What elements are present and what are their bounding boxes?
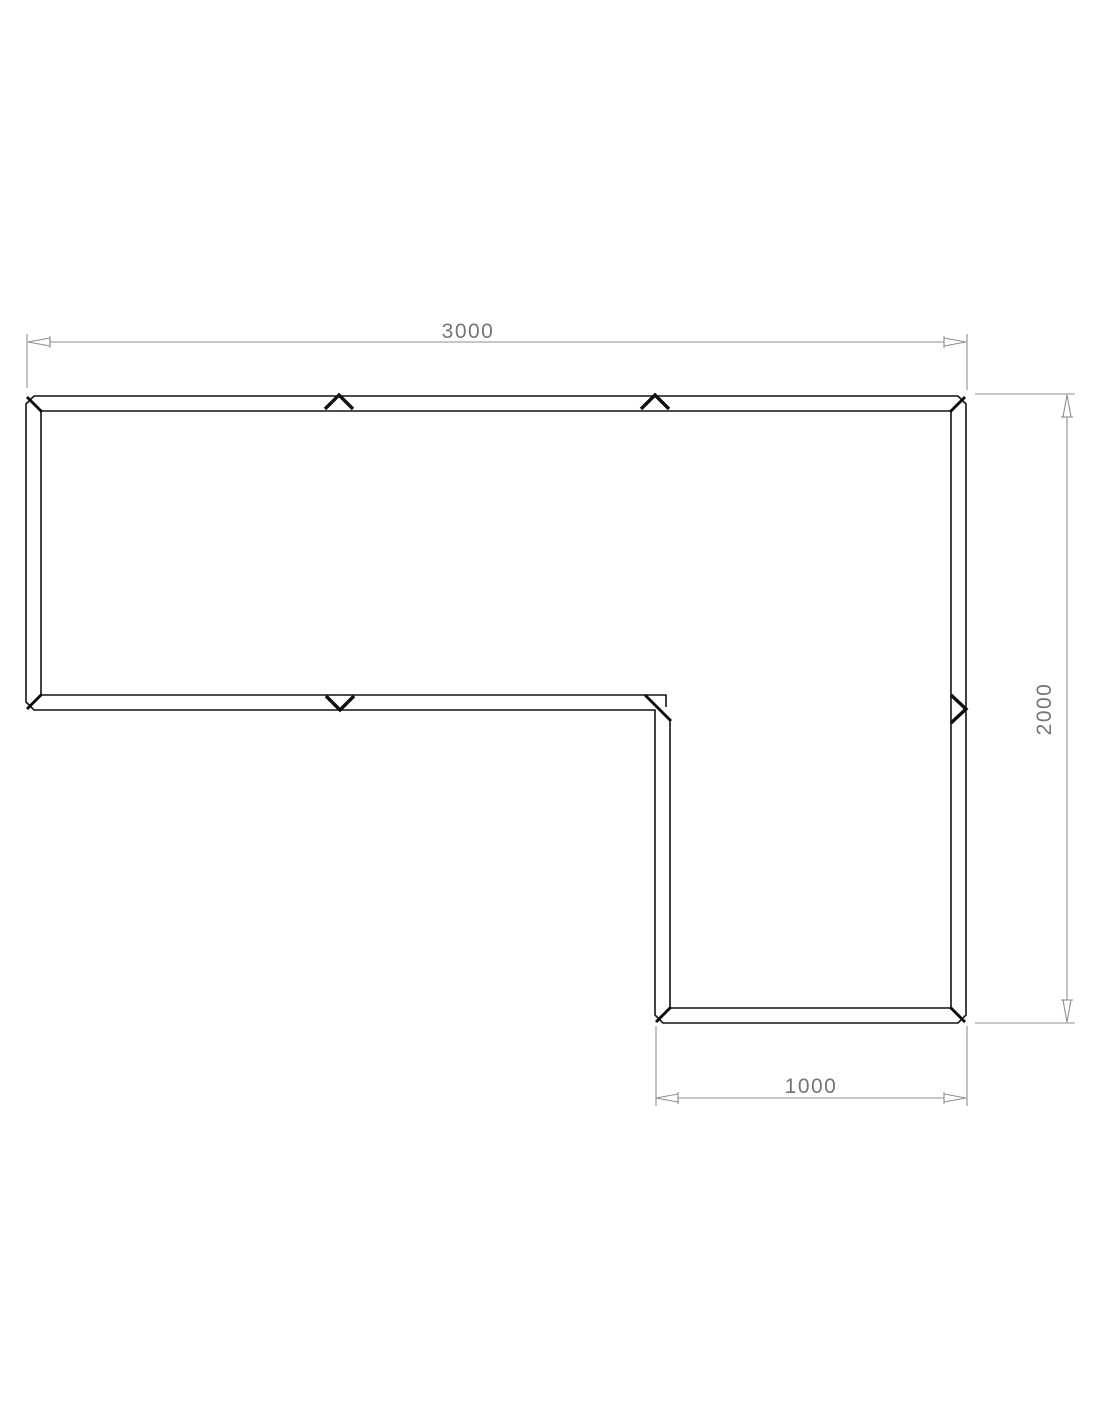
dimension-bottom: 1000 — [656, 1026, 967, 1106]
miter-inner-reflex-corner — [645, 695, 671, 721]
dimension-top-arrow-right — [944, 338, 966, 346]
dimension-right-arrow-down — [1063, 1000, 1071, 1022]
technical-drawing: 3000 2000 1000 — [0, 0, 1100, 1422]
joint-marks-group — [325, 395, 966, 723]
frame-outer-boundary — [26, 396, 966, 1023]
dimension-bottom-label: 1000 — [785, 1075, 838, 1098]
frame-outline-group — [26, 396, 966, 1023]
drawing-canvas: 3000 2000 1000 — [0, 0, 1100, 1422]
miter-bottom-left-leg — [656, 1007, 671, 1022]
dimension-right: 2000 — [975, 394, 1075, 1023]
joint-chevron-right-edge — [951, 695, 966, 723]
miter-top-right — [950, 397, 965, 412]
dimension-bottom-arrow-right — [944, 1094, 966, 1102]
dimension-top: 3000 — [27, 320, 967, 390]
dimension-top-arrow-left — [28, 338, 50, 346]
joint-chevron-top-2 — [641, 395, 669, 409]
miter-top-left — [27, 397, 42, 412]
dimension-right-arrow-up — [1063, 395, 1071, 417]
miter-bottom-right-leg — [950, 1007, 965, 1022]
dimension-right-label: 2000 — [1033, 683, 1056, 736]
miter-bottom-left-arm — [27, 694, 42, 709]
frame-inner-boundary-left — [41, 411, 666, 707]
joint-chevron-bottom-arm — [326, 696, 354, 710]
dimension-bottom-arrow-left — [656, 1094, 678, 1102]
joint-chevron-top-1 — [325, 395, 353, 409]
dimension-top-label: 3000 — [442, 320, 495, 343]
